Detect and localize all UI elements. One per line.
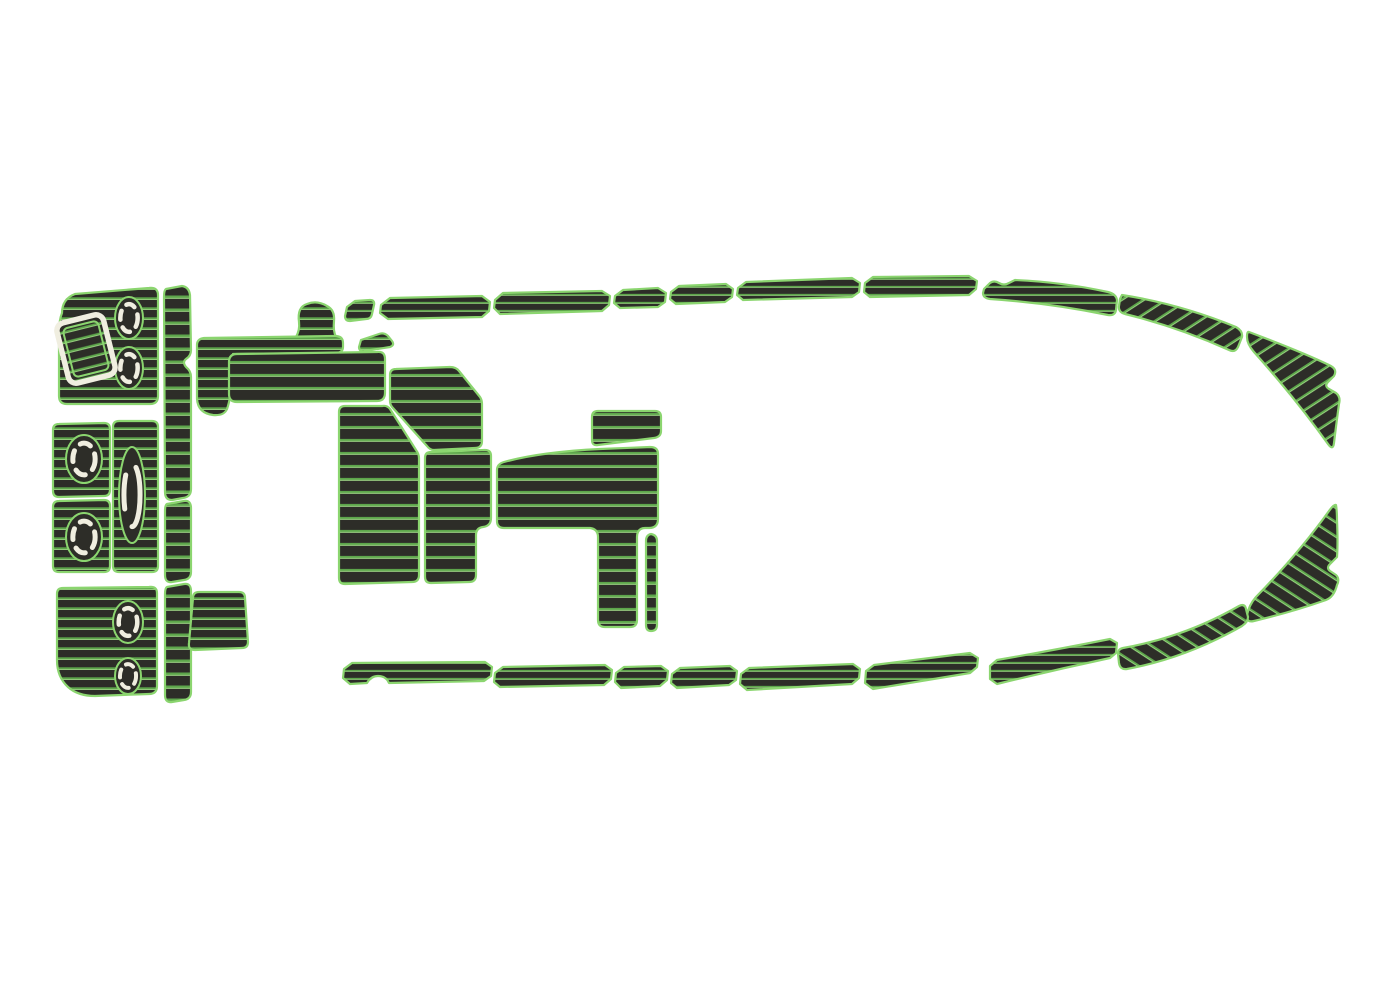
gunwale-bottom-3 [615,666,668,688]
cockpit-floor-left [339,406,419,584]
gunwale-bottom-5 [740,664,860,690]
gunwale-top-6 [864,276,977,297]
gunwale-top-4 [670,284,733,304]
gunwale-bottom-2 [494,665,612,687]
gunwale-bow-top [1247,332,1340,447]
gunwale-top-1 [380,296,490,319]
cockpit-sliver [359,333,393,351]
cockpit-floor-right [425,450,491,583]
stern-hatch-2 [115,658,141,694]
transom-hatch-1 [115,297,143,339]
cockpit-pad-main [497,447,658,627]
gunwale-top-3 [614,288,666,308]
mid-hatch-2 [66,513,102,561]
cockpit-strip [646,534,657,631]
cockpit-quad-pad [592,411,661,445]
pieces-layer [53,276,1340,702]
stern-hatch-1 [113,601,143,643]
gunwale-top-0 [345,300,374,321]
gunwale-bottom-6 [865,653,978,689]
mid-hatch-tall [119,447,145,543]
gunwale-top-5 [737,278,860,300]
gunwale-top-7 [983,280,1117,315]
gunwale-top-2 [494,291,610,314]
transom-ladder-lower [165,584,191,702]
transom-hatch-2 [115,347,143,389]
transom-ladder-middle [165,501,191,582]
gunwale-top-curve [1119,295,1242,351]
product-image [0,0,1380,1000]
cockpit-pad-long [229,352,385,402]
stern-step-pad [189,592,248,650]
gunwale-bottom-7 [990,639,1117,684]
gunwale-bottom-curve [1118,605,1248,669]
transom-pad-bottom [57,587,157,696]
gunwale-bottom-4 [671,666,737,688]
gunwale-bow-bottom [1247,505,1338,622]
boat-decking-diagram [0,0,1380,1000]
gunwale-bottom-1 [343,662,492,684]
mid-hatch-1 [66,435,102,483]
transom-ladder-upper [164,286,191,500]
